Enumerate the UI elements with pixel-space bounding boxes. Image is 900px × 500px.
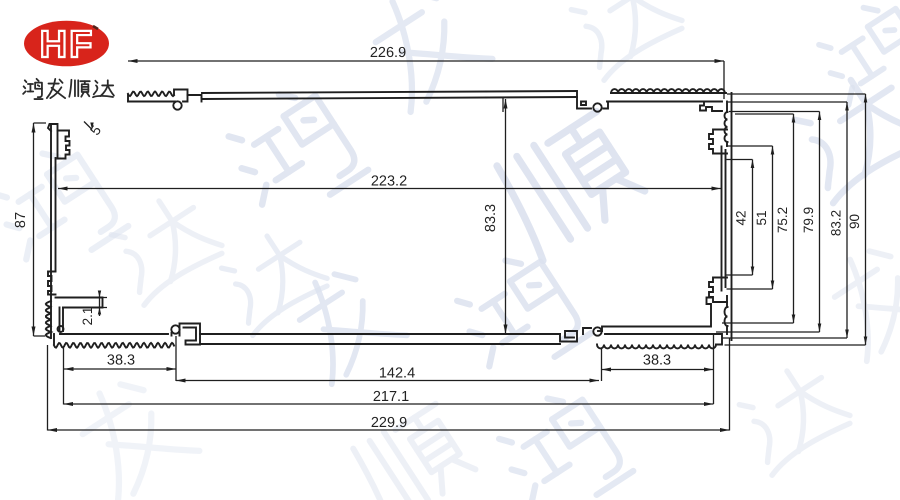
svg-text:87: 87 — [13, 212, 29, 228]
svg-text:90: 90 — [847, 214, 862, 229]
svg-text:226.9: 226.9 — [370, 45, 406, 61]
svg-text:142.4: 142.4 — [379, 366, 415, 382]
svg-text:38.3: 38.3 — [107, 353, 135, 369]
svg-text:2.1: 2.1 — [80, 307, 95, 326]
svg-text:5: 5 — [87, 122, 105, 138]
svg-text:79.9: 79.9 — [801, 207, 816, 233]
svg-text:229.9: 229.9 — [371, 415, 407, 431]
svg-text:83.3: 83.3 — [483, 204, 499, 232]
svg-text:38.3: 38.3 — [643, 353, 671, 369]
svg-text:51: 51 — [754, 210, 769, 225]
svg-text:HF: HF — [40, 24, 95, 66]
svg-text:83.2: 83.2 — [829, 210, 844, 236]
svg-text:223.2: 223.2 — [371, 174, 407, 190]
svg-text:42: 42 — [734, 210, 749, 225]
svg-text:75.2: 75.2 — [775, 207, 790, 233]
svg-text:217.1: 217.1 — [373, 389, 409, 405]
